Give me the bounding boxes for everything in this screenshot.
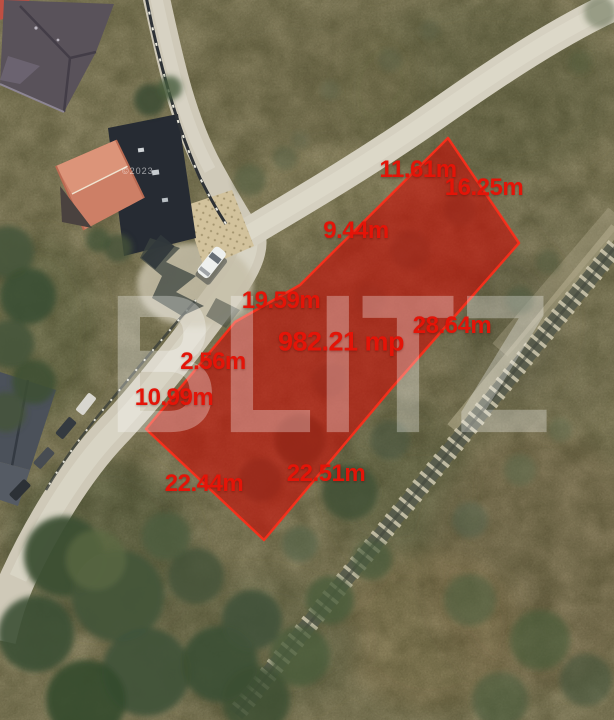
satellite-map: ©2023 BLITZ 11.61m 16.25m 9.44m 19.59m 2… [0,0,614,720]
measurement-label-22-51: 22.51m [287,460,365,488]
measurement-label-22-44: 22.44m [165,470,243,498]
brand-watermark: BLITZ [107,265,552,463]
measurement-label-9-44: 9.44m [323,217,389,245]
area-label: 982.21 mp [278,327,404,358]
measurement-label-19-59: 19.59m [242,287,320,315]
measurement-label-16-25: 16.25m [445,174,523,202]
measurement-label-10-99: 10.99m [135,384,213,412]
measurement-label-2-56: 2.56m [180,348,246,376]
measurement-label-28-64: 28.64m [413,312,491,340]
map-credit: ©2023 [122,166,154,176]
